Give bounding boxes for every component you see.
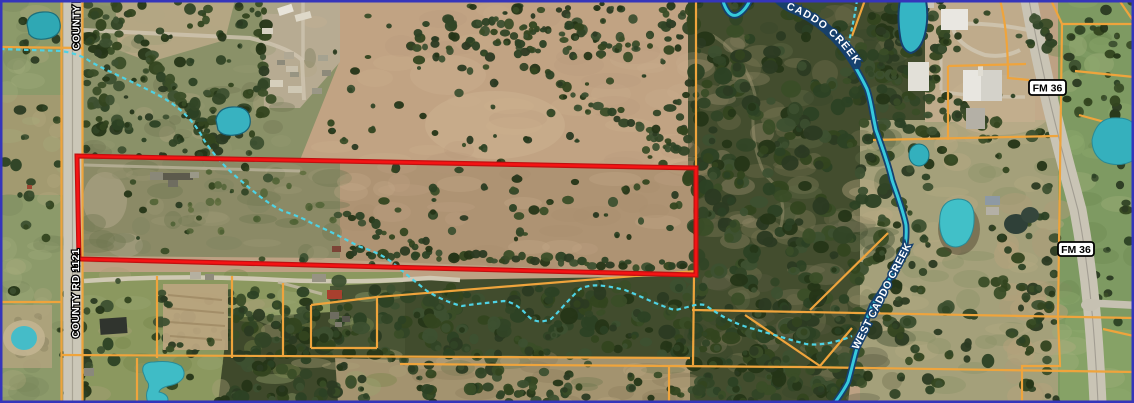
svg-text:COUNTY RD 1121: COUNTY RD 1121 [71,248,82,338]
svg-text:FM 36: FM 36 [1061,244,1091,256]
svg-text:COUNTY RD 1121: COUNTY RD 1121 [72,0,83,50]
svg-text:FM 36: FM 36 [1033,83,1063,95]
